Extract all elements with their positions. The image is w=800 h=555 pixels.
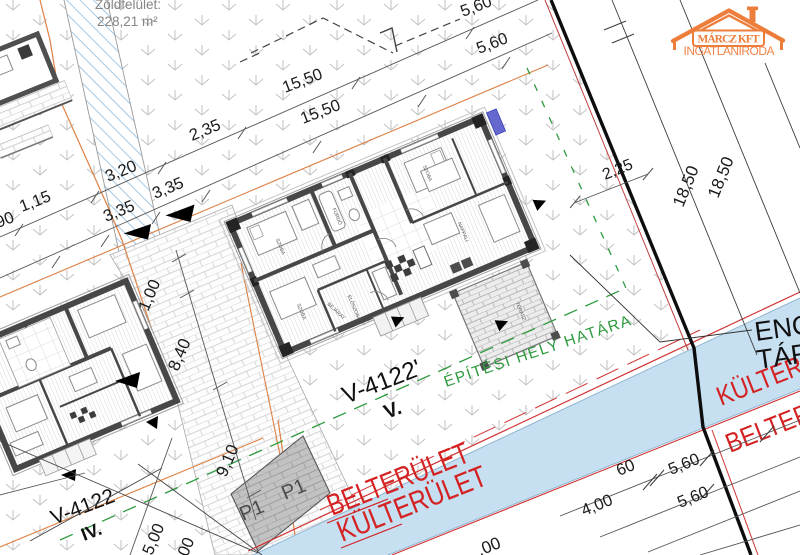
svg-text:228,21 m²: 228,21 m² xyxy=(97,14,158,29)
svg-text:INGATLANIRODA: INGATLANIRODA xyxy=(684,44,775,58)
svg-text:Zöldfelület:: Zöldfelület: xyxy=(95,0,161,12)
